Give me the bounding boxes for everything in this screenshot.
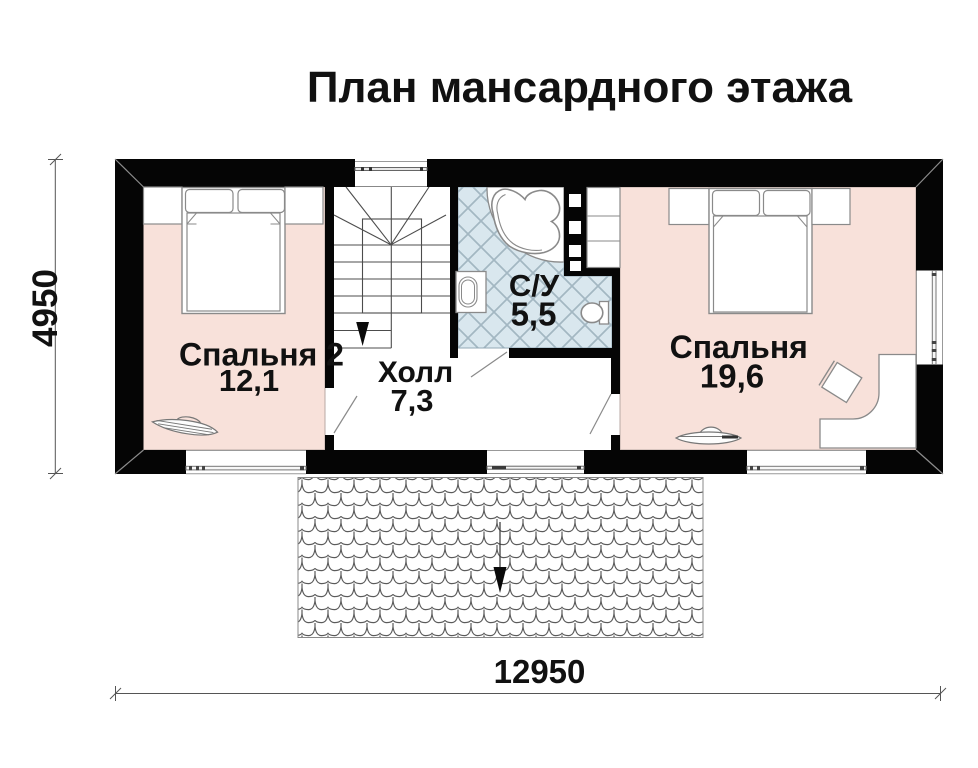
svg-text:12,1: 12,1 bbox=[219, 363, 279, 398]
svg-text:19,6: 19,6 bbox=[700, 358, 764, 395]
svg-text:12950: 12950 bbox=[494, 653, 586, 690]
svg-text:4950: 4950 bbox=[26, 269, 65, 347]
svg-text:7,3: 7,3 bbox=[390, 383, 433, 418]
svg-text:План мансардного этажа: План мансардного этажа bbox=[307, 63, 853, 112]
svg-text:5,5: 5,5 bbox=[511, 296, 557, 333]
